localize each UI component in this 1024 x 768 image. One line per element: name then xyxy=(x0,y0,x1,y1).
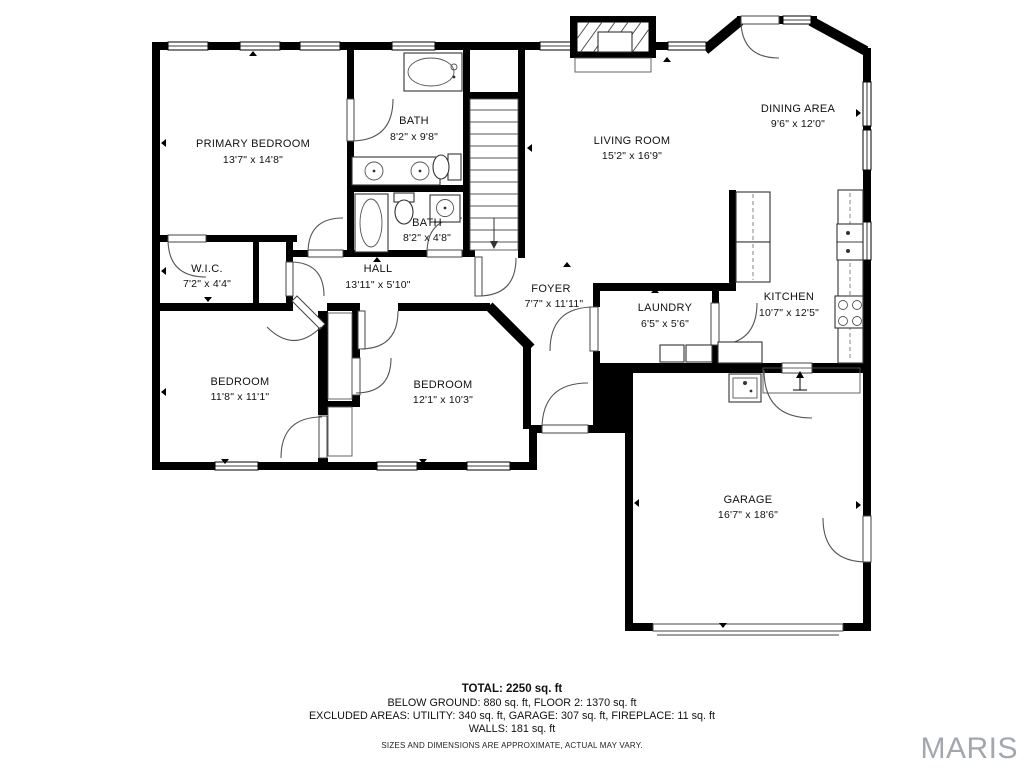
label-bath-lower: BATH xyxy=(412,217,442,229)
label-bath-upper: BATH xyxy=(399,115,429,127)
label-garage-dims: 16'7" x 18'6" xyxy=(718,509,778,521)
pantry-cabinet xyxy=(736,242,770,282)
label-dining-area-dims: 9'6" x 12'0" xyxy=(771,118,825,130)
laundry-fixtures xyxy=(660,345,712,362)
window xyxy=(783,16,811,24)
label-bath-lower-dims: 8'2" x 4'8" xyxy=(403,232,451,244)
label-garage: GARAGE xyxy=(724,494,773,506)
footer-disclaimer: SIZES AND DIMENSIONS ARE APPROXIMATE, AC… xyxy=(381,741,642,750)
label-bedroom-right-dims: 12'1" x 10'3" xyxy=(413,394,473,406)
stove xyxy=(835,296,863,328)
label-wic-dims: 7'2" x 4'4" xyxy=(183,278,231,290)
bathtub xyxy=(404,53,462,91)
window xyxy=(215,462,258,470)
label-bedroom-right: BEDROOM xyxy=(414,379,473,391)
utility-sink xyxy=(729,374,761,402)
footer-areas-line2: EXCLUDED AREAS: UTILITY: 340 sq. ft, GAR… xyxy=(309,710,715,722)
label-bath-upper-dims: 8'2" x 9'8" xyxy=(390,131,438,143)
label-foyer-dims: 7'7" x 11'11" xyxy=(525,298,584,310)
toilet xyxy=(394,193,414,224)
label-kitchen-dims: 10'7" x 12'5" xyxy=(759,307,819,319)
label-hall-dims: 13'11" x 5'10" xyxy=(345,279,411,291)
window xyxy=(863,82,871,126)
window xyxy=(668,42,706,50)
label-hall: HALL xyxy=(364,263,393,275)
kitchen-counter xyxy=(838,190,863,363)
window xyxy=(863,130,871,170)
label-primary-bedroom: PRIMARY BEDROOM xyxy=(196,138,310,150)
label-foyer: FOYER xyxy=(531,283,570,295)
label-living-room-dims: 15'2" x 16'9" xyxy=(602,150,662,162)
label-bedroom-left-dims: 11'8" x 11'1" xyxy=(211,391,270,403)
window xyxy=(377,462,417,470)
refrigerator xyxy=(736,192,770,242)
bathtub xyxy=(355,194,388,252)
label-wic: W.I.C. xyxy=(191,263,223,275)
label-dining-area: DINING AREA xyxy=(761,103,836,115)
vanity-sinks xyxy=(352,157,440,185)
window xyxy=(863,222,871,260)
footer-areas-line1: BELOW GROUND: 880 sq. ft, FLOOR 2: 1370 … xyxy=(387,697,636,709)
label-primary-bedroom-dims: 13'7" x 14'8" xyxy=(223,154,283,166)
window xyxy=(168,42,208,50)
maris-watermark: MARIS xyxy=(920,732,1018,765)
label-laundry-dims: 6'5" x 5'6" xyxy=(641,318,689,330)
footer-areas-line3: WALLS: 181 sq. ft xyxy=(469,723,556,735)
kitchen-sink xyxy=(837,224,863,260)
counter xyxy=(718,342,762,363)
window xyxy=(240,42,280,50)
label-bedroom-left: BEDROOM xyxy=(211,376,270,388)
label-laundry: LAUNDRY xyxy=(638,302,693,314)
footer-total: TOTAL: 2250 sq. ft xyxy=(462,683,563,695)
label-living-room: LIVING ROOM xyxy=(594,135,671,147)
window xyxy=(392,42,435,50)
floor-plan-image: PRIMARY BEDROOM 13'7" x 14'8" BATH 8'2" … xyxy=(0,0,1024,768)
window xyxy=(467,462,510,470)
window xyxy=(300,42,340,50)
label-kitchen: KITCHEN xyxy=(764,291,814,303)
